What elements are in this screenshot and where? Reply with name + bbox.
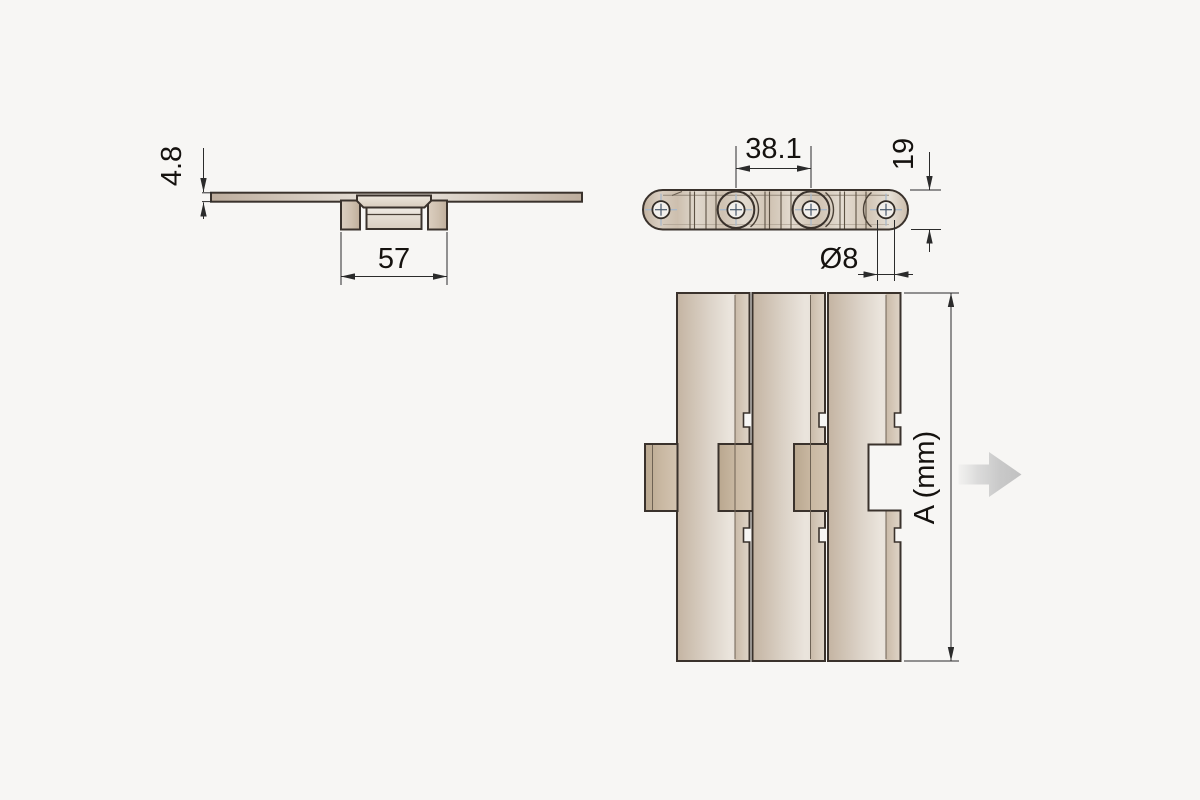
- dimension-pitch: 38.1: [736, 133, 811, 188]
- pin-diameter-label: Ø8: [820, 243, 859, 275]
- dimension-thickness: 4.8: [156, 146, 212, 219]
- view-side-elevation: 38.1 19 Ø8: [643, 133, 941, 281]
- view-top-plan: A (mm): [645, 293, 1022, 661]
- dimension-belt-width: A (mm): [904, 293, 959, 661]
- hinge-tab-left: [645, 444, 678, 511]
- height-label: 19: [888, 138, 920, 170]
- direction-arrow-icon: [959, 452, 1022, 497]
- end-view-left-leg: [341, 201, 360, 230]
- belt-width-label: A (mm): [909, 431, 941, 524]
- dimension-hinge-width: 57: [341, 232, 447, 285]
- view-end-section: 4.8 57: [156, 146, 582, 285]
- drawing-canvas: 4.8 57: [0, 0, 1200, 800]
- technical-drawing: 4.8 57: [0, 0, 1200, 800]
- end-view-hinge-bar: [357, 196, 431, 208]
- end-view-hinge-block: [367, 208, 422, 230]
- top-view-hinge-tabs: [645, 444, 828, 511]
- end-view-right-leg: [428, 201, 447, 230]
- pitch-label: 38.1: [745, 133, 801, 165]
- top-view-open-notch: [869, 445, 902, 511]
- thickness-label: 4.8: [156, 146, 188, 186]
- hinge-width-label: 57: [378, 243, 410, 275]
